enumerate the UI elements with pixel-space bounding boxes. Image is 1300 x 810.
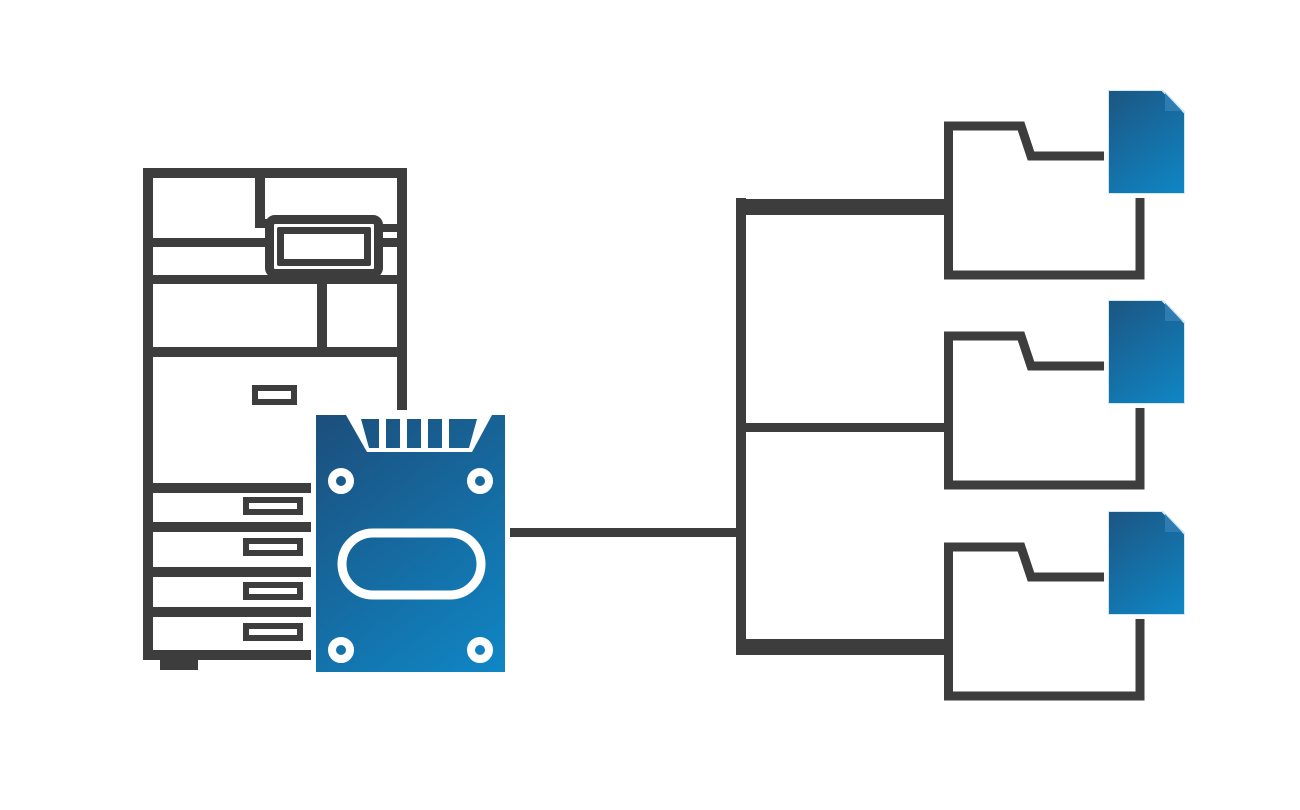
printer-tray-handle-4 (243, 623, 303, 641)
document-icon (1108, 300, 1185, 404)
connector-branch-top (736, 199, 953, 215)
printer-tray-handle-1 (243, 497, 303, 515)
folder-group-3 (944, 511, 1194, 706)
connector-hdd-line (507, 528, 746, 537)
folder-group-1 (944, 90, 1194, 285)
folder-group-2 (944, 300, 1194, 495)
hard-drive-icon (316, 415, 505, 672)
printer-mid-divider (317, 284, 327, 347)
printer-lid-line (383, 224, 407, 232)
printer-tray-handle-3 (243, 582, 303, 600)
printer-control-panel (265, 215, 383, 278)
connector-branch-bottom (736, 639, 953, 655)
diagram-canvas (0, 0, 1300, 810)
printer-front-badge (252, 385, 297, 405)
printer-display (277, 227, 371, 266)
document-icon (1108, 511, 1185, 615)
connector-branch-middle (736, 423, 953, 432)
printer-foot (160, 652, 198, 670)
printer-divider-3 (143, 347, 407, 357)
document-icon (1108, 90, 1185, 194)
printer-tray-handle-2 (243, 538, 303, 556)
